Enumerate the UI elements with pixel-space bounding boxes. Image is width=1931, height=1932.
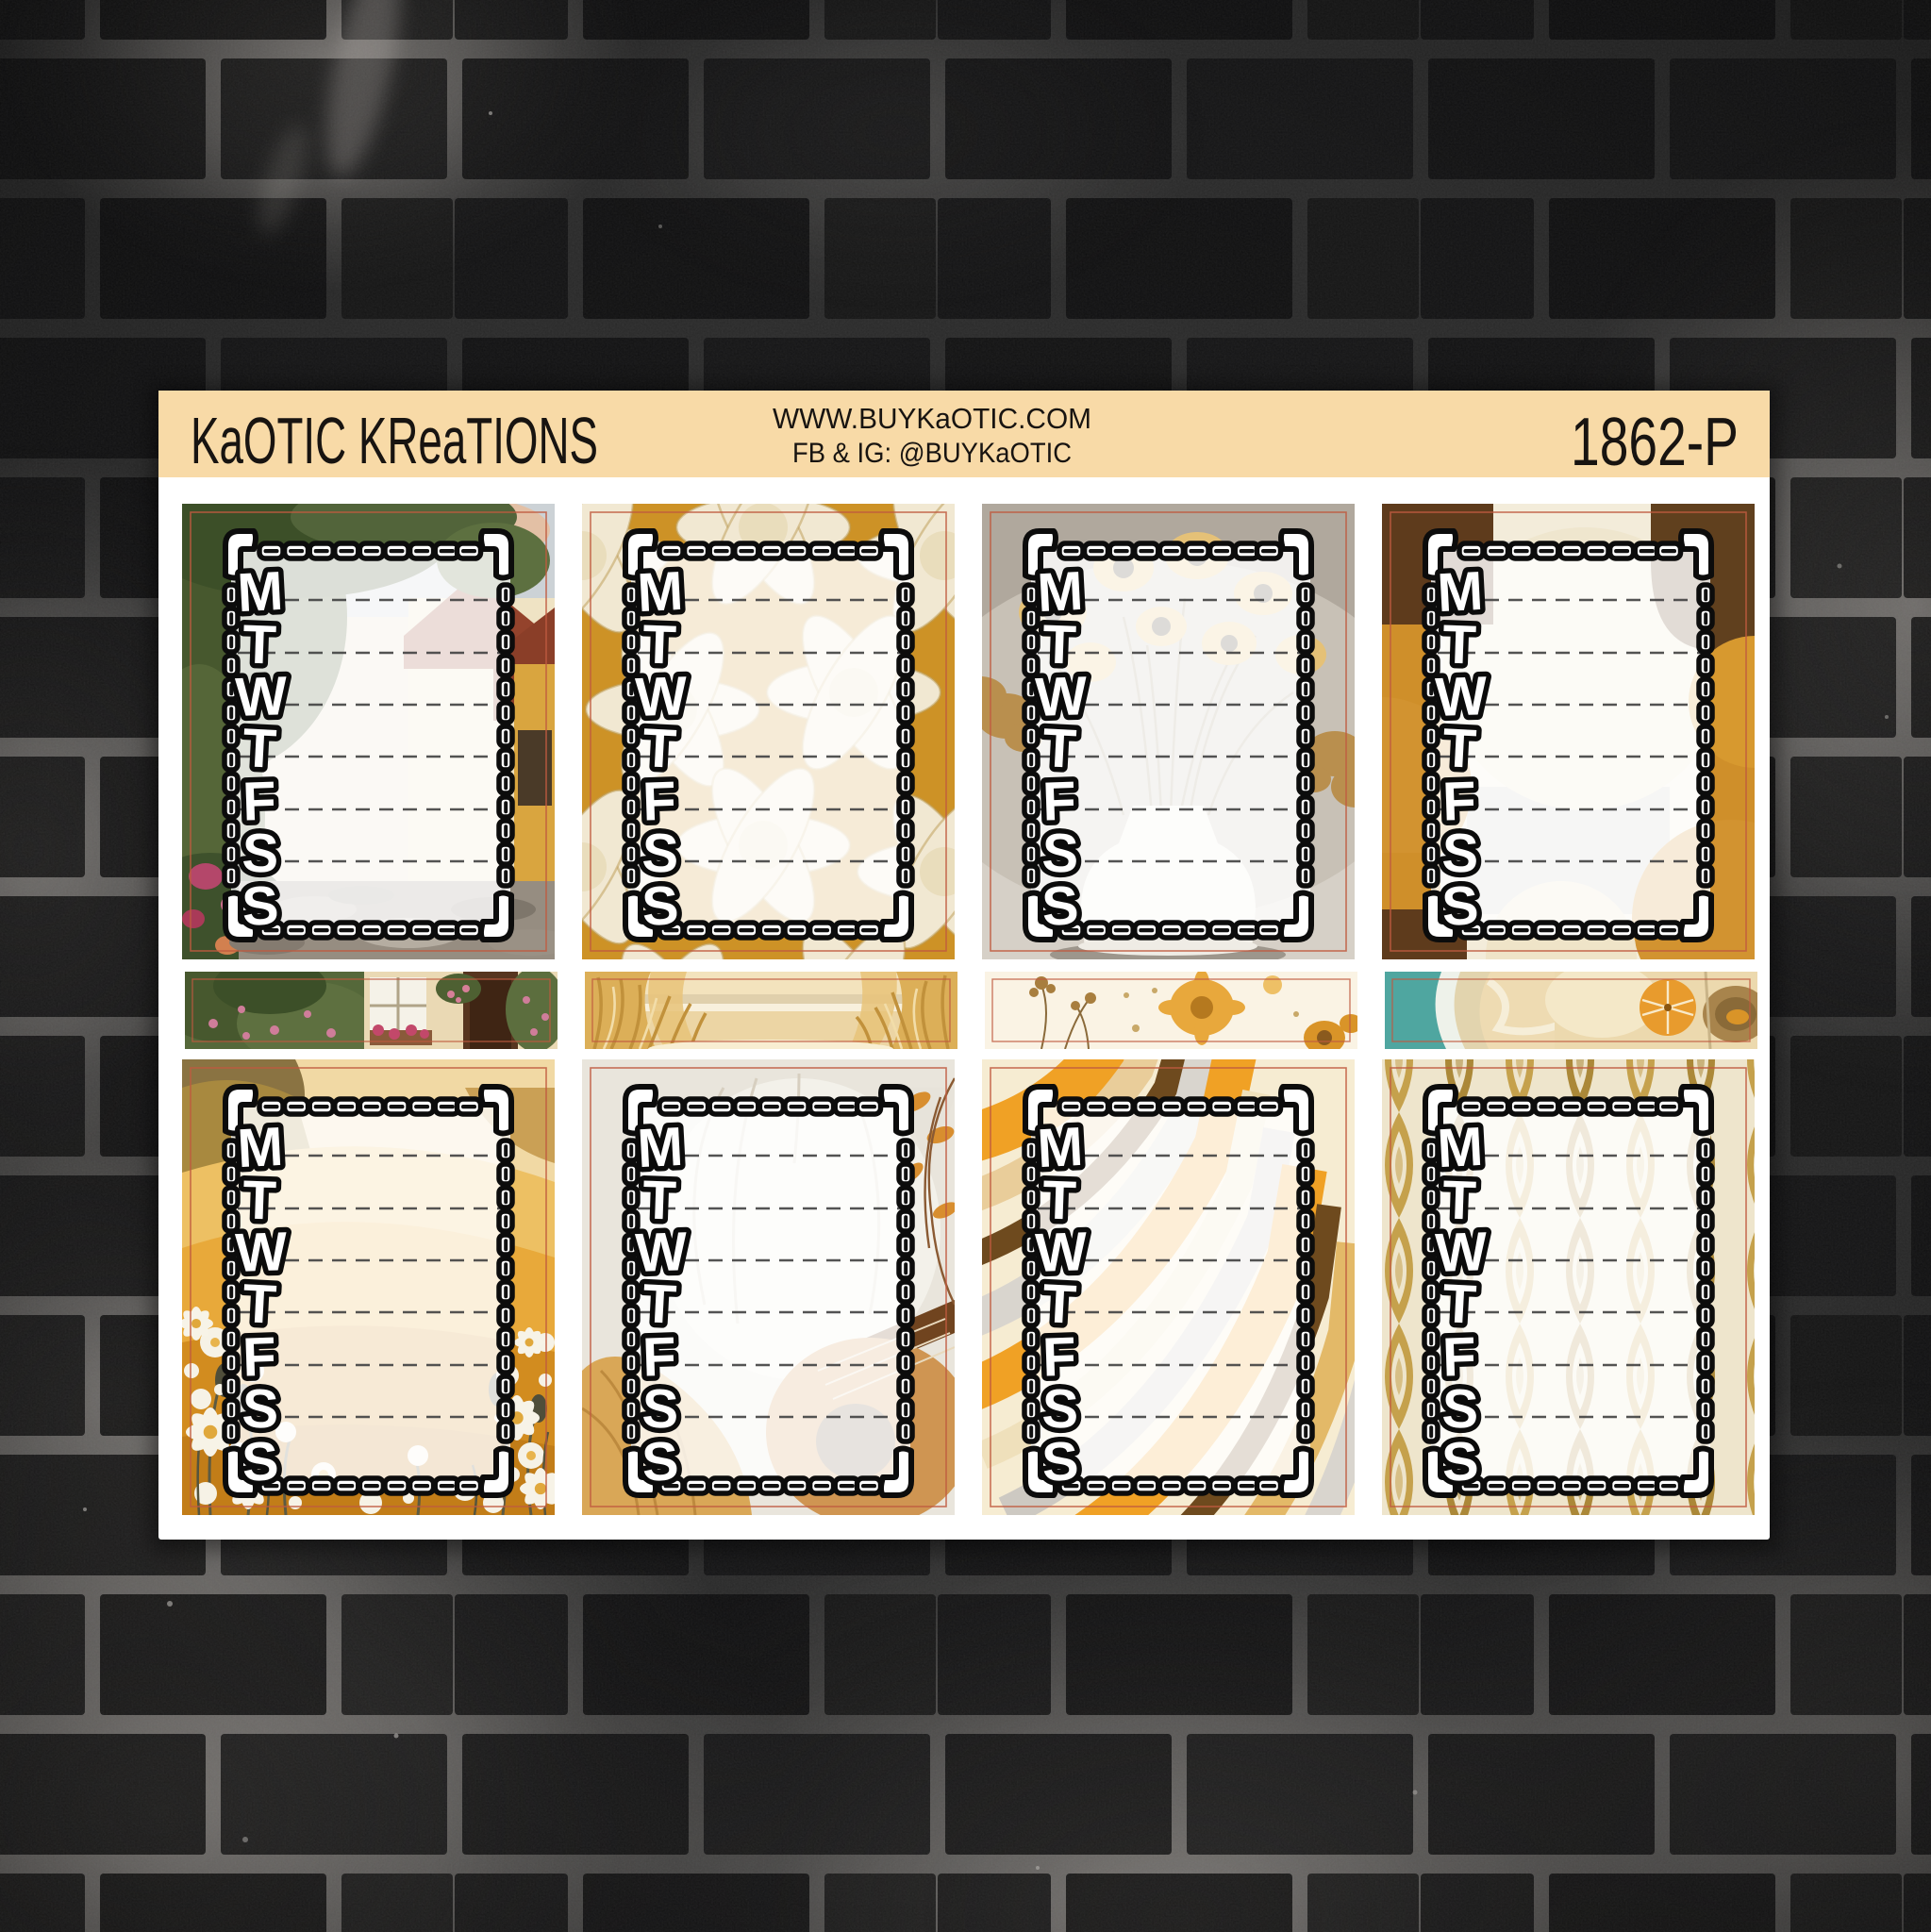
svg-text:1862-P: 1862-P	[1571, 405, 1739, 480]
svg-text:KaOTIC KReaTIONS: KaOTIC KReaTIONS	[191, 404, 598, 477]
svg-text:FB & IG: @BUYKaOTIC: FB & IG: @BUYKaOTIC	[792, 438, 1072, 469]
svg-text:WWW.BUYKaOTIC.COM: WWW.BUYKaOTIC.COM	[773, 402, 1091, 435]
